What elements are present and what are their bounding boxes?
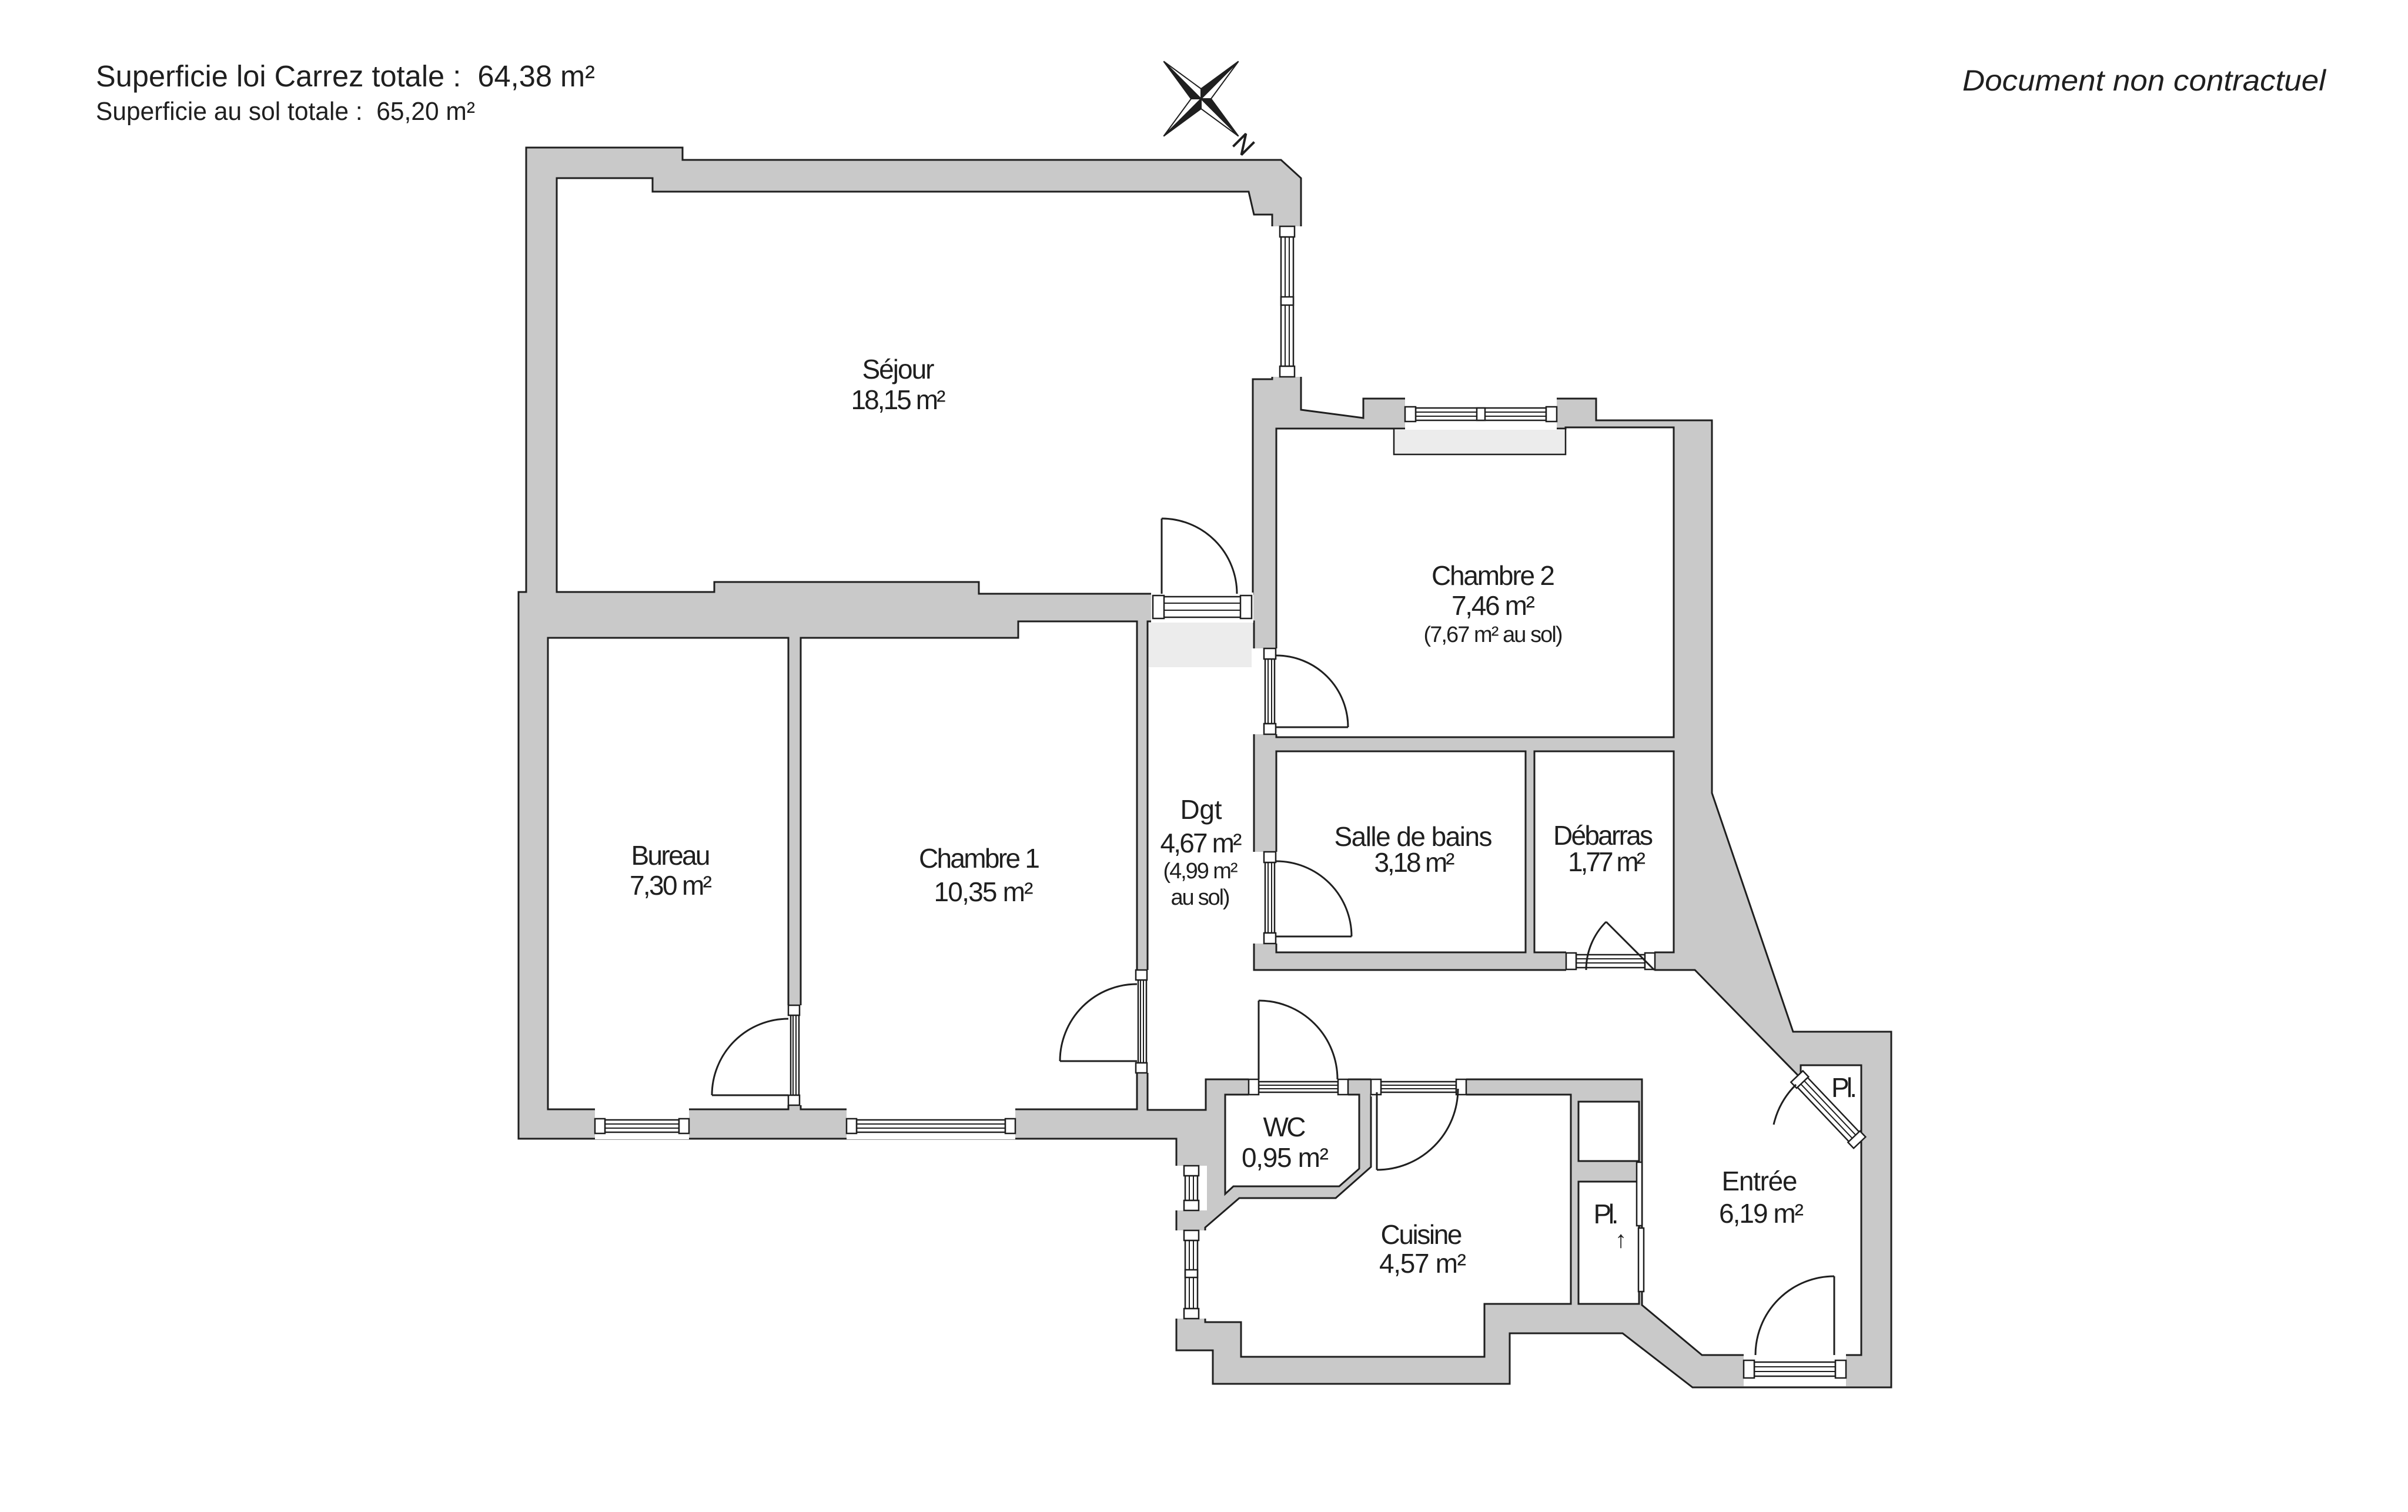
svg-text:Pl.: Pl. (1831, 1072, 1857, 1103)
svg-text:Bureau: Bureau (631, 840, 711, 871)
svg-text:1,77 m²: 1,77 m² (1568, 847, 1646, 877)
svg-text:10,35 m²: 10,35 m² (934, 877, 1034, 907)
svg-text:Superficie au sol totale : 65: Superficie au sol totale : 65,20 m² (96, 97, 475, 126)
svg-text:↑: ↑ (1615, 1227, 1627, 1253)
svg-text:0,95 m²: 0,95 m² (1242, 1142, 1329, 1173)
svg-text:7,46 m²: 7,46 m² (1452, 590, 1535, 621)
svg-text:7,30 m²: 7,30 m² (630, 870, 712, 901)
svg-text:Entrée: Entrée (1722, 1166, 1798, 1196)
svg-text:3,18 m²: 3,18 m² (1374, 847, 1455, 878)
svg-text:Cuisine: Cuisine (1381, 1219, 1463, 1250)
svg-text:4,57 m²: 4,57 m² (1379, 1248, 1466, 1279)
svg-text:au sol): au sol) (1171, 885, 1230, 910)
svg-text:4,67 m²: 4,67 m² (1160, 828, 1242, 858)
svg-text:(7,67 m² au sol): (7,67 m² au sol) (1424, 623, 1563, 647)
svg-text:6,19 m²: 6,19 m² (1719, 1198, 1804, 1229)
svg-text:(4,99 m²: (4,99 m² (1163, 859, 1238, 884)
svg-text:Document non contractuel: Document non contractuel (1962, 64, 2327, 97)
svg-text:Chambre 2: Chambre 2 (1432, 560, 1555, 591)
svg-text:Pl.: Pl. (1594, 1199, 1619, 1229)
svg-text:Séjour: Séjour (862, 354, 935, 384)
svg-text:Dgt: Dgt (1180, 794, 1222, 825)
svg-text:18,15 m²: 18,15 m² (851, 384, 946, 415)
svg-text:Superficie loi Carrez totale :: Superficie loi Carrez totale : 64,38 m² (96, 59, 595, 93)
svg-text:WC: WC (1263, 1112, 1306, 1142)
svg-text:Chambre 1: Chambre 1 (919, 843, 1040, 874)
